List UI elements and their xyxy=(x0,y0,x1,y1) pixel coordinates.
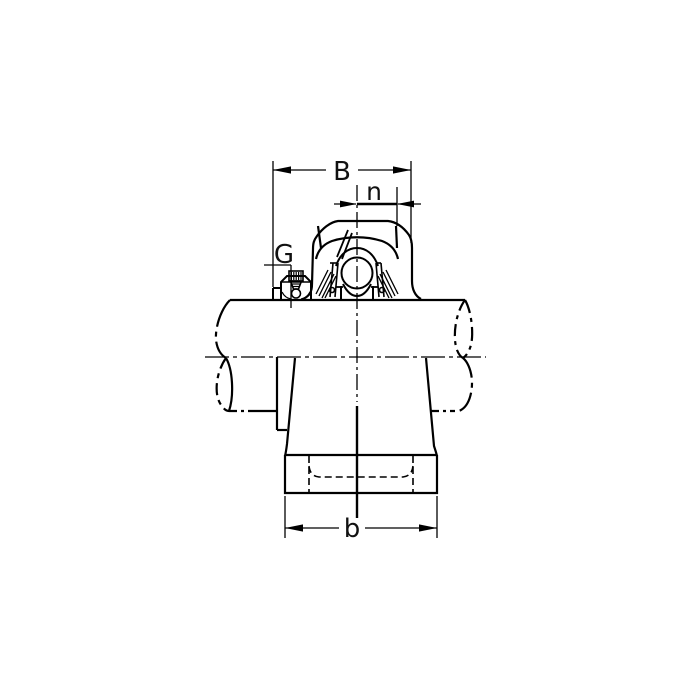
dome-tangent-edge-right xyxy=(396,226,397,248)
base-hidden-recess xyxy=(309,456,413,492)
locking-collar xyxy=(273,271,311,300)
shaft-break-left-lens-outer xyxy=(217,358,229,411)
shaft-break-left-lens-inner xyxy=(226,358,232,411)
shaft xyxy=(216,300,472,411)
dim-b-arrow-right xyxy=(419,524,437,531)
shaft-break-right-lens-inner xyxy=(463,300,472,358)
dim-B-arrow-left xyxy=(273,166,291,173)
dimension-b xyxy=(285,496,437,538)
shaft-break-right-lens-outer xyxy=(455,300,465,358)
dim-n-arrow-left xyxy=(340,201,357,208)
shaft-break-right-scurve xyxy=(455,358,472,411)
recess-hidden-channel xyxy=(309,466,413,477)
dim-B-arrow-right xyxy=(393,166,411,173)
technical-drawing-page: B n G b xyxy=(0,0,700,700)
pedestal-right-slant xyxy=(426,358,437,456)
pedestal-left-slant xyxy=(285,358,295,456)
dim-b-label: b xyxy=(344,514,361,544)
set-screw-ball xyxy=(292,289,301,298)
bearing-drawing: B n G b xyxy=(0,0,700,700)
dim-G-label: G xyxy=(274,240,294,270)
dim-b-arrow-left xyxy=(285,524,303,531)
grease-passage-line-1 xyxy=(337,230,348,257)
shaft-break-left-scurve xyxy=(216,300,230,358)
section-hatch-left xyxy=(316,270,336,298)
dim-B-label: B xyxy=(333,157,351,187)
dim-n-arrow-right xyxy=(397,201,414,208)
dimension-G xyxy=(264,265,291,308)
dim-n-label: n xyxy=(366,177,382,206)
section-hatch-right xyxy=(378,270,398,298)
base-outline xyxy=(285,455,437,493)
collar-bottom-fillet-left xyxy=(282,292,291,299)
dome-tangent-edge-left xyxy=(318,226,321,248)
